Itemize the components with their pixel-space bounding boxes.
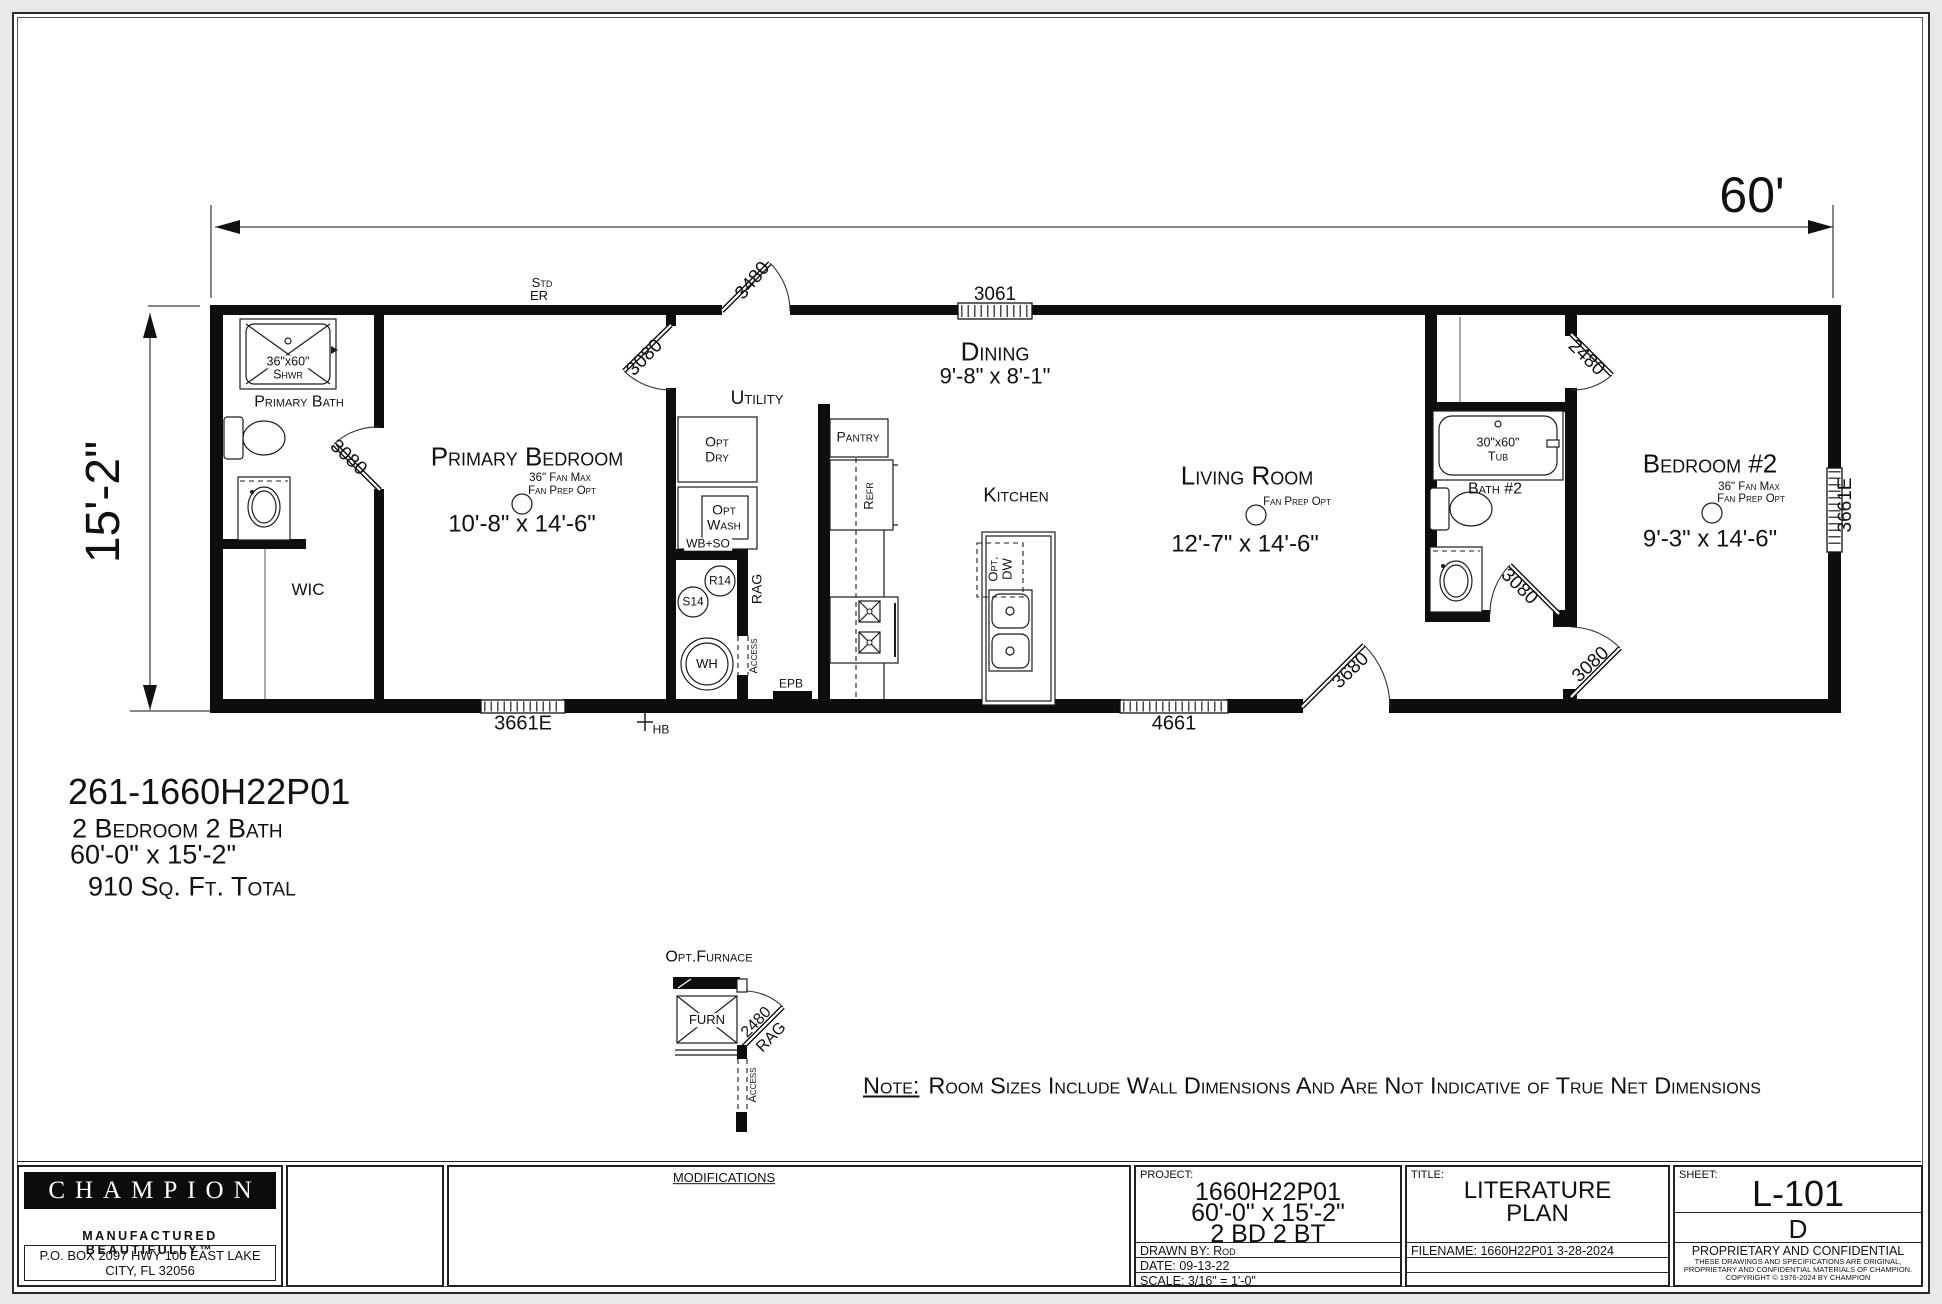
- drawn-by-row: DRAWN BY: Rod: [1136, 1242, 1400, 1257]
- kitchen-fixtures: [830, 419, 1055, 705]
- utility-room-label: Utility: [731, 389, 784, 409]
- champion-logo: CHAMPION: [24, 1172, 276, 1209]
- furnace-access-label: Access: [748, 1068, 760, 1103]
- bedroom2-fan-max-label: 36" Fan Max: [1718, 481, 1780, 493]
- opt-furnace-title: Opt.Furnace: [665, 950, 752, 967]
- pantry-label: Pantry: [836, 430, 879, 445]
- proprietary-line3: COPYRIGHT © 1976-2024 BY CHAMPION: [1675, 1274, 1921, 1282]
- opt-washer-line2: Wash: [707, 517, 741, 532]
- bed1-window-size: 3661E: [494, 714, 552, 735]
- title-empty-row2: [1407, 1272, 1668, 1285]
- bath2-fixtures: [1430, 317, 1563, 612]
- bath2-label: Bath #2: [1468, 482, 1522, 499]
- water-heater-label: WH: [696, 657, 718, 671]
- primary-bedroom-label: Primary Bedroom: [431, 443, 624, 470]
- titleblock-title-cell: TITLE: LITERATURE PLAN FILENAME: 1660H22…: [1405, 1165, 1670, 1287]
- shower-label: Shwr: [271, 368, 305, 381]
- sheet-revision: D: [1675, 1214, 1921, 1245]
- scale-row: SCALE: 3/16" = 1'-0": [1136, 1272, 1400, 1285]
- hose-bib-symbol: [637, 713, 653, 731]
- opt-washer-line1: Opt: [707, 502, 741, 517]
- dining-room-label: Dining: [961, 338, 1030, 365]
- sheet-divider-1: [1675, 1212, 1921, 1213]
- modifications-label: MODIFICATIONS: [673, 1171, 775, 1185]
- opt-dryer-label: OptDry: [705, 434, 729, 463]
- living-room-size: 12'-7" x 14'-6": [1171, 531, 1319, 556]
- titleblock-project-cell: PROJECT: 1660H22P01 60'-0" x 15'-2" 2 BD…: [1134, 1165, 1402, 1287]
- r14-label: R14: [709, 575, 731, 588]
- titleblock-sheet-cell: SHEET: L-101 D PROPRIETARY AND CONFIDENT…: [1673, 1165, 1923, 1287]
- tub-size-label: 30"x60": [1475, 436, 1522, 449]
- note-label: Note:: [863, 1073, 919, 1099]
- opt-dw-line1: Opt.: [986, 556, 1000, 581]
- fan-symbols: [512, 494, 1722, 525]
- model-area: 910 Sq. Ft. Total: [88, 872, 296, 903]
- epb-label: EPB: [779, 678, 803, 691]
- wb-so-label: WB+SO: [684, 538, 732, 551]
- living-fan-prep-label: Fan Prep Opt: [1263, 496, 1331, 508]
- dimension-width: 60': [1719, 169, 1784, 222]
- primary-fan-max-label: 36" Fan Max: [529, 472, 591, 484]
- drawing-sheet: 60' 15'-2" Std ER 3480 3061 Dining 9'-8"…: [0, 0, 1942, 1304]
- drawing-title-line2: PLAN: [1407, 1200, 1668, 1228]
- hose-bib-label: HB: [653, 724, 670, 737]
- sheet-divider-2: [1675, 1242, 1921, 1243]
- titleblock-brand-cell: CHAMPION MANUFACTURED BEAUTIFULLY™ P.O. …: [17, 1165, 283, 1287]
- sheet-number: L-101: [1675, 1173, 1921, 1215]
- dining-window-size: 3061: [974, 285, 1016, 305]
- s14-label: S14: [682, 596, 703, 609]
- date-row: DATE: 09-13-22: [1136, 1257, 1400, 1272]
- brand-address: P.O. BOX 2097 HWY 100 EAST LAKE CITY, FL…: [24, 1245, 276, 1281]
- rag-label: RAG: [750, 574, 765, 604]
- furnace-label: FURN: [687, 1013, 727, 1027]
- titleblock-modifications-cell: MODIFICATIONS: [447, 1165, 1131, 1287]
- opt-dw-line2: DW: [1000, 556, 1014, 581]
- bedroom2-fan-prep-label: Fan Prep Opt: [1717, 493, 1785, 505]
- bedroom2-size: 9'-3" x 14'-6": [1643, 526, 1777, 551]
- er-label: ER: [530, 289, 548, 303]
- living-window-size: 4661: [1152, 714, 1197, 735]
- tub-label: Tub: [1486, 450, 1510, 463]
- proprietary-title: PROPRIETARY AND CONFIDENTIAL: [1675, 1244, 1921, 1258]
- opt-dryer-line1: Opt: [705, 434, 729, 449]
- model-number: 261-1660H22P01: [68, 771, 350, 813]
- primary-bath-label: Primary Bath: [254, 395, 344, 412]
- primary-fan-prep-label: Fan Prep Opt: [528, 485, 596, 497]
- titleblock-empty-cell: [286, 1165, 444, 1287]
- primary-bedroom-size: 10'-8" x 14'-6": [448, 511, 596, 536]
- filename-row: FILENAME: 1660H22P01 3-28-2024: [1407, 1242, 1668, 1257]
- opt-dishwasher-label: Opt.DW: [986, 556, 1013, 581]
- living-room-label: Living Room: [1181, 462, 1313, 489]
- bedroom2-label: Bedroom #2: [1643, 450, 1778, 477]
- model-size: 60'-0" x 15'-2": [70, 840, 236, 871]
- opt-dryer-line2: Dry: [705, 449, 729, 464]
- note-text: Room Sizes Include Wall Dimensions And A…: [928, 1073, 1761, 1099]
- title-empty-row1: [1407, 1257, 1668, 1272]
- dining-room-size: 9'-8" x 8'-1": [940, 364, 1051, 387]
- floor-plan-drawing: [0, 0, 1942, 1304]
- kitchen-label: Kitchen: [983, 486, 1048, 507]
- refrigerator-label: Refr: [862, 482, 876, 509]
- access-label: Access: [749, 639, 761, 674]
- note: Note:Room Sizes Include Wall Dimensions …: [863, 1073, 1761, 1100]
- bed2-window-size: 3661E: [1836, 478, 1856, 533]
- dimension-height: 15'-2": [79, 441, 129, 563]
- wic-label: WIC: [291, 581, 324, 599]
- titleblock-top-rule: [17, 1161, 1921, 1162]
- opt-washer-label: OptWash: [707, 502, 741, 531]
